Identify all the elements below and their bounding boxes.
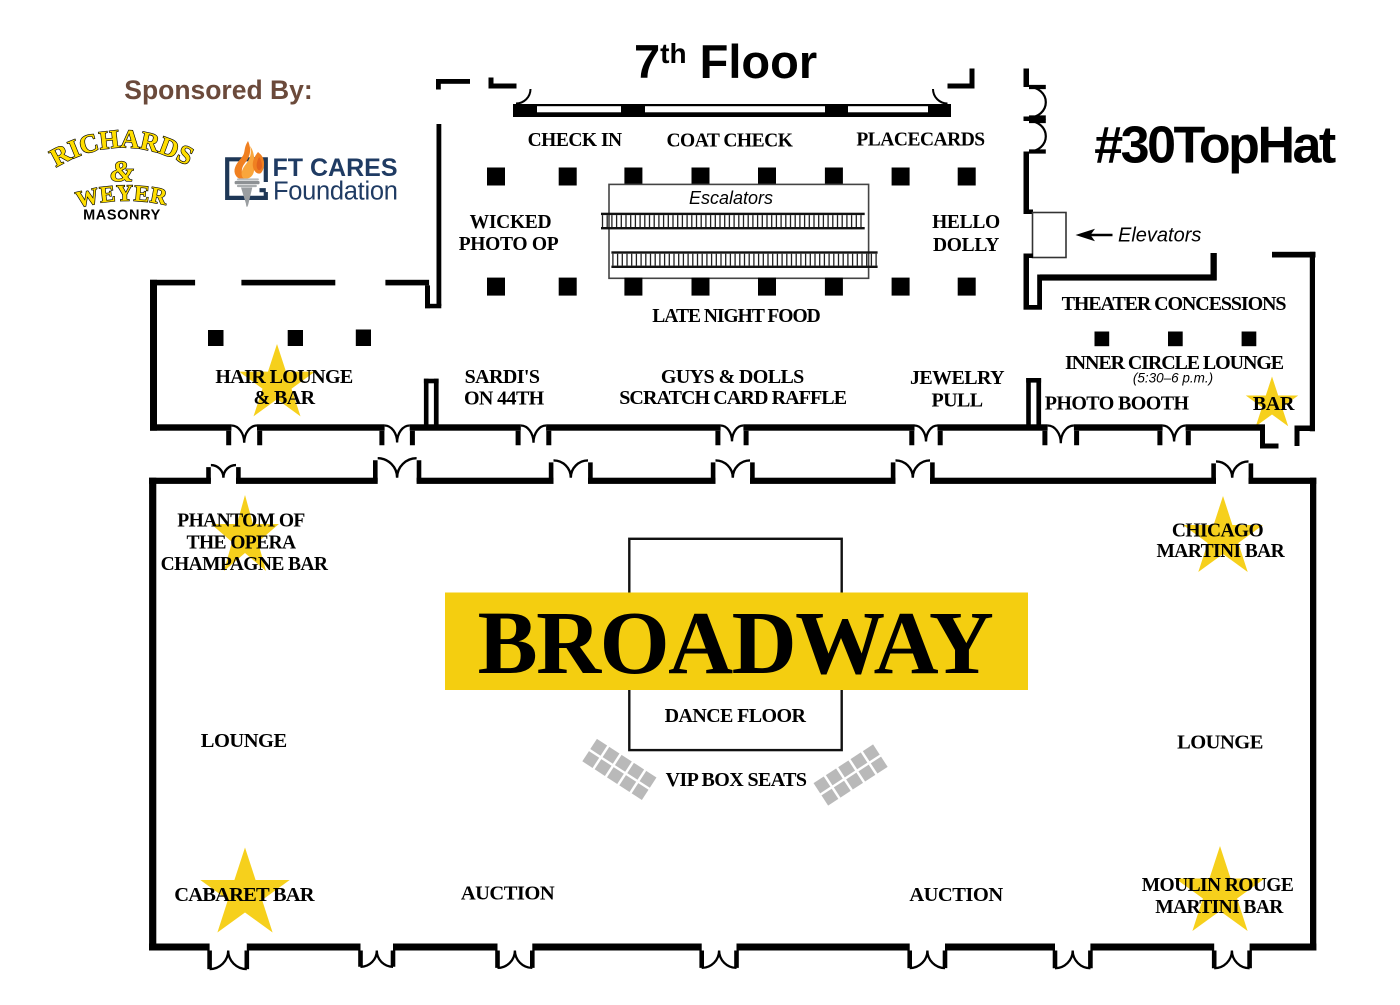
- svg-text:CHICAGO: CHICAGO: [1172, 520, 1264, 541]
- svg-text:LOUNGE: LOUNGE: [201, 730, 287, 752]
- svg-text:CHECK IN: CHECK IN: [528, 130, 622, 151]
- svg-text:HAIR LOUNGE: HAIR LOUNGE: [215, 366, 353, 388]
- svg-text:PULL: PULL: [932, 390, 983, 412]
- svg-text:MOULIN ROUGE: MOULIN ROUGE: [1142, 875, 1294, 896]
- svg-text:& BAR: & BAR: [254, 387, 316, 409]
- svg-text:PLACECARDS: PLACECARDS: [856, 130, 985, 151]
- svg-text:THE OPERA: THE OPERA: [187, 533, 296, 554]
- svg-text:(5:30–6 p.m.): (5:30–6 p.m.): [1133, 371, 1213, 386]
- svg-text:VIP BOX SEATS: VIP BOX SEATS: [666, 769, 807, 791]
- svg-text:AUCTION: AUCTION: [909, 884, 1003, 906]
- svg-text:LATE NIGHT FOOD: LATE NIGHT FOOD: [652, 306, 820, 327]
- svg-text:PHOTO BOOTH: PHOTO BOOTH: [1045, 393, 1190, 415]
- svg-text:LOUNGE: LOUNGE: [1177, 732, 1263, 754]
- svg-text:Sponsored By:: Sponsored By:: [124, 75, 312, 105]
- svg-text:Escalators: Escalators: [689, 188, 773, 208]
- svg-text:MASONRY: MASONRY: [83, 208, 161, 224]
- svg-text:SARDI'S: SARDI'S: [465, 366, 540, 388]
- svg-text:MARTINI BAR: MARTINI BAR: [1156, 541, 1285, 562]
- svg-text:#30TopHat: #30TopHat: [1094, 117, 1336, 175]
- svg-text:PHOTO OP: PHOTO OP: [459, 234, 559, 255]
- svg-text:CABARET BAR: CABARET BAR: [174, 884, 314, 906]
- svg-text:SCRATCH CARD RAFFLE: SCRATCH CARD RAFFLE: [619, 387, 847, 409]
- svg-text:ON 44TH: ON 44TH: [464, 388, 545, 410]
- svg-text:CHAMPAGNE BAR: CHAMPAGNE BAR: [161, 554, 329, 575]
- svg-text:Foundation: Foundation: [273, 178, 398, 206]
- svg-text:DANCE FLOOR: DANCE FLOOR: [665, 705, 807, 727]
- svg-text:PHANTOM OF: PHANTOM OF: [177, 511, 304, 532]
- svg-text:Elevators: Elevators: [1118, 225, 1201, 247]
- svg-text:DOLLY: DOLLY: [933, 235, 999, 256]
- svg-text:BAR: BAR: [1253, 393, 1295, 415]
- svg-text:BROADWAY: BROADWAY: [478, 594, 993, 693]
- svg-text:AUCTION: AUCTION: [461, 883, 555, 905]
- svg-text:JEWELRY: JEWELRY: [910, 367, 1005, 389]
- svg-text:THEATER CONCESSIONS: THEATER CONCESSIONS: [1062, 293, 1287, 315]
- svg-text:MARTINI BAR: MARTINI BAR: [1155, 897, 1284, 918]
- svg-text:COAT CHECK: COAT CHECK: [666, 131, 793, 152]
- svg-text:GUYS & DOLLS: GUYS & DOLLS: [661, 366, 804, 388]
- svg-text:HELLO: HELLO: [932, 212, 1000, 233]
- svg-text:WICKED: WICKED: [470, 212, 552, 233]
